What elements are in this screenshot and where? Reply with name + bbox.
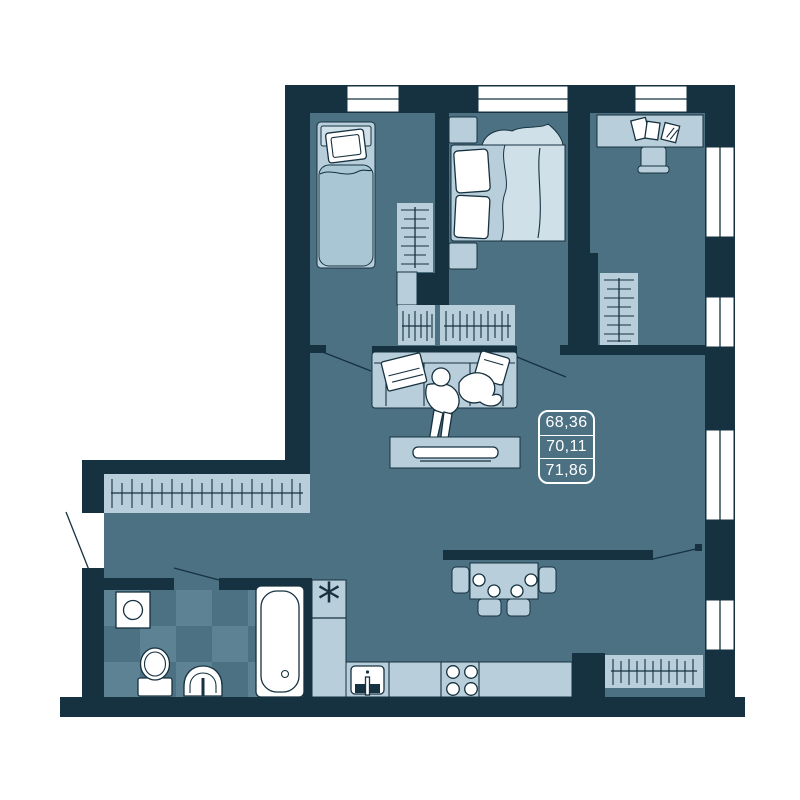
nightstand-icon (449, 117, 477, 143)
corridor-wardrobe-left (398, 305, 435, 345)
wall-segment (285, 85, 310, 462)
blanket (319, 165, 373, 266)
window-icon (706, 600, 734, 650)
office-chair-icon (638, 147, 669, 173)
wall-segment (60, 697, 745, 717)
paper (645, 121, 660, 140)
wall-segment (82, 460, 104, 513)
pillow-icon (325, 129, 366, 163)
single-bed-icon (317, 122, 375, 268)
area-value-text: 68,36 (545, 414, 587, 432)
chair-icon (452, 567, 469, 593)
area-value: 68,36 (540, 412, 593, 435)
window-icon (706, 430, 734, 520)
wall-segment (568, 253, 598, 347)
window-icon (635, 86, 687, 112)
area-value: 70,11 (540, 435, 593, 459)
pillow-icon (454, 149, 491, 193)
burner (465, 666, 478, 679)
faucet-dot (366, 670, 369, 673)
asterisk-icon: * (318, 573, 341, 627)
window-icon (706, 297, 734, 347)
pillow (454, 195, 490, 239)
wall-segment (435, 113, 449, 275)
wall-segment (568, 113, 590, 255)
corridor-wardrobe-right (440, 305, 515, 345)
chair-icon (478, 599, 501, 616)
washer-body (116, 592, 150, 628)
washbasin-icon (184, 666, 222, 696)
chair-icon (539, 567, 556, 593)
chair-back (638, 166, 669, 173)
area-value-text: 70,11 (546, 438, 587, 456)
plate-icon (525, 574, 537, 586)
area-label-box: 68,36 70,11 71,86 (538, 410, 595, 484)
wall-column (417, 273, 449, 305)
bathtub-icon (256, 586, 304, 697)
chair-seat (641, 147, 666, 168)
desk-icon (597, 115, 703, 147)
chair-icon (507, 599, 530, 616)
door-stop (695, 544, 702, 551)
area-value: 71,86 (540, 458, 593, 482)
wall-stub (572, 653, 605, 697)
window-icon (706, 147, 734, 237)
bedroom-wardrobe-vertical (397, 203, 433, 272)
floor-plan-page: * (0, 0, 800, 800)
burner (465, 683, 478, 696)
person-head (432, 368, 450, 386)
papers-icon (645, 121, 660, 140)
tray-icon (413, 447, 498, 458)
plate-icon (473, 574, 485, 586)
plate-icon (511, 585, 523, 597)
toilet-tank (138, 678, 172, 696)
window-icon (347, 86, 399, 112)
burner (447, 683, 460, 696)
tub-outer (256, 586, 304, 697)
pillow (454, 149, 491, 193)
wall-segment (560, 345, 705, 355)
floor-plan-drawing: * (0, 0, 800, 800)
kitchen-sink-icon (351, 666, 384, 695)
plate-icon (488, 585, 500, 597)
wall-segment (104, 578, 174, 590)
blanket (501, 145, 565, 241)
wall-segment (82, 568, 104, 698)
washing-machine-icon (116, 592, 150, 628)
coffee-table-icon (390, 437, 520, 468)
wall-segment (82, 460, 310, 474)
toilet-icon (138, 648, 172, 696)
burner (447, 666, 460, 679)
basin-tap (202, 678, 205, 696)
wall-segment (443, 550, 653, 560)
study-wardrobe (600, 273, 638, 347)
window-icon (478, 86, 568, 112)
bottom-right-wardrobe (605, 655, 703, 688)
hallway-wardrobe (104, 474, 310, 513)
papers-icon (661, 123, 680, 143)
wardrobe-icon (440, 305, 515, 345)
area-value-text: 71,86 (545, 462, 587, 480)
cabinet (397, 272, 417, 305)
pillow-icon (454, 195, 490, 239)
door-swing-icon (66, 512, 89, 570)
nightstand-icon (449, 243, 477, 269)
faucet (366, 677, 370, 695)
